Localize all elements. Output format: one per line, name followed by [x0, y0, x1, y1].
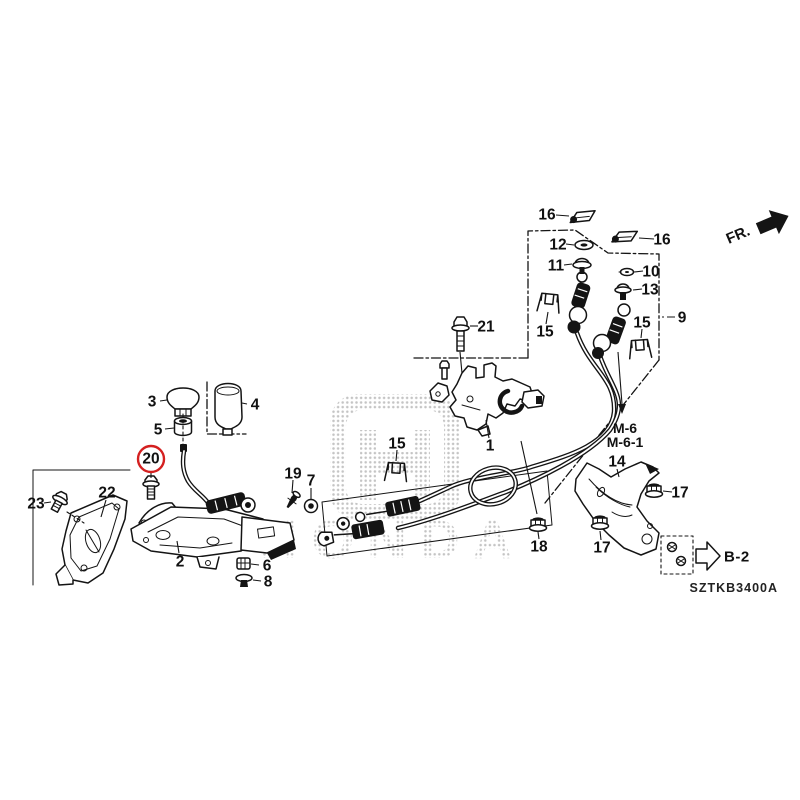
part-callout-6[interactable]: 6 [263, 558, 272, 575]
part-callout-15[interactable]: 15 [536, 324, 554, 341]
callout-leader [160, 400, 167, 401]
callout-leader [44, 502, 51, 503]
part-18-nut-glyph[interactable] [530, 517, 547, 531]
part-16-clip-glyph[interactable] [610, 228, 639, 244]
part-callout-11[interactable]: 11 [548, 258, 565, 275]
part-callout-19[interactable]: 19 [284, 466, 302, 483]
parts-diagram: HONDA [0, 0, 800, 800]
diagram-code: SZTKB3400A [690, 581, 779, 595]
part-callout-15[interactable]: 15 [388, 436, 406, 453]
part-3-shift-knob-glyph[interactable] [167, 388, 199, 416]
callout-leader [556, 215, 569, 216]
cable-fitting-upper-right [592, 304, 630, 359]
fr-arrow-icon [753, 204, 794, 241]
part-callout-23[interactable]: 23 [27, 496, 45, 513]
part-callout-17[interactable]: 17 [593, 540, 610, 557]
callout-leader [564, 264, 572, 265]
part-callout-17[interactable]: 17 [671, 485, 688, 502]
b2-arrow-icon [696, 542, 720, 570]
callout-leader [165, 428, 174, 429]
part-callout-21[interactable]: 21 [477, 319, 495, 336]
part-callout-20[interactable]: 20 [142, 451, 159, 468]
watermark-text: HONDA [259, 508, 526, 570]
part-callout-22[interactable]: 22 [98, 485, 115, 502]
ref-b2-label: B-2 [724, 549, 750, 566]
part-4-shift-knob-glyph[interactable] [215, 384, 242, 436]
parts-diagram-page: HONDA [0, 0, 800, 800]
part-22-bracket-glyph[interactable] [56, 495, 127, 585]
fr-label: FR. [724, 223, 753, 248]
part-callout-18[interactable]: 18 [530, 539, 548, 556]
b2-fastener-glyph [668, 543, 677, 552]
part-14-bracket-glyph[interactable] [575, 462, 659, 555]
part-callout-2[interactable]: 2 [176, 554, 185, 571]
callout-leader [253, 580, 261, 581]
ref-m6-1-label: M-6-1 [607, 434, 644, 450]
part-17-nut-glyph[interactable] [646, 483, 663, 497]
part-8-grommet-glyph[interactable] [236, 575, 252, 588]
part-callout-12[interactable]: 12 [549, 237, 566, 254]
part-20-bolt-glyph[interactable] [143, 476, 159, 499]
part-10-bushing-glyph[interactable] [619, 269, 634, 276]
part-13-pin-glyph[interactable] [615, 284, 631, 300]
callout-leader [242, 403, 247, 404]
part-callout-8[interactable]: 8 [264, 574, 273, 591]
part-callout-4[interactable]: 4 [251, 397, 260, 414]
part-callout-14[interactable]: 14 [608, 454, 626, 471]
part-17-nut-glyph[interactable] [592, 515, 609, 529]
b2-fastener-glyph [677, 557, 686, 566]
part-callout-13[interactable]: 13 [641, 282, 659, 299]
part-callout-16[interactable]: 16 [653, 232, 671, 249]
part-callout-1[interactable]: 1 [486, 438, 495, 455]
fr-direction-indicator: FR. [723, 204, 794, 254]
callout-leader [546, 312, 548, 324]
part-callout-7[interactable]: 7 [307, 473, 316, 490]
callout-leader [566, 244, 574, 245]
part-7-washer-glyph[interactable] [305, 500, 318, 513]
part-6-nut-glyph[interactable] [237, 558, 250, 569]
part-15-clip-glyph[interactable] [537, 293, 561, 313]
part-callout-5[interactable]: 5 [154, 422, 163, 439]
part-16-clip-glyph[interactable] [568, 208, 597, 226]
part-callout-16[interactable]: 16 [538, 207, 556, 224]
part-12-washer-glyph[interactable] [575, 241, 593, 250]
part-15-clip-glyph[interactable] [628, 339, 651, 358]
ref-b2[interactable]: B-2 [661, 536, 750, 574]
part-callout-9[interactable]: 9 [678, 310, 687, 327]
part-callout-15[interactable]: 15 [633, 315, 651, 332]
part-callout-10[interactable]: 10 [642, 264, 659, 281]
cable-fitting-upper-left [568, 272, 592, 334]
part-callout-3[interactable]: 3 [148, 394, 157, 411]
callout-leader [639, 238, 654, 239]
